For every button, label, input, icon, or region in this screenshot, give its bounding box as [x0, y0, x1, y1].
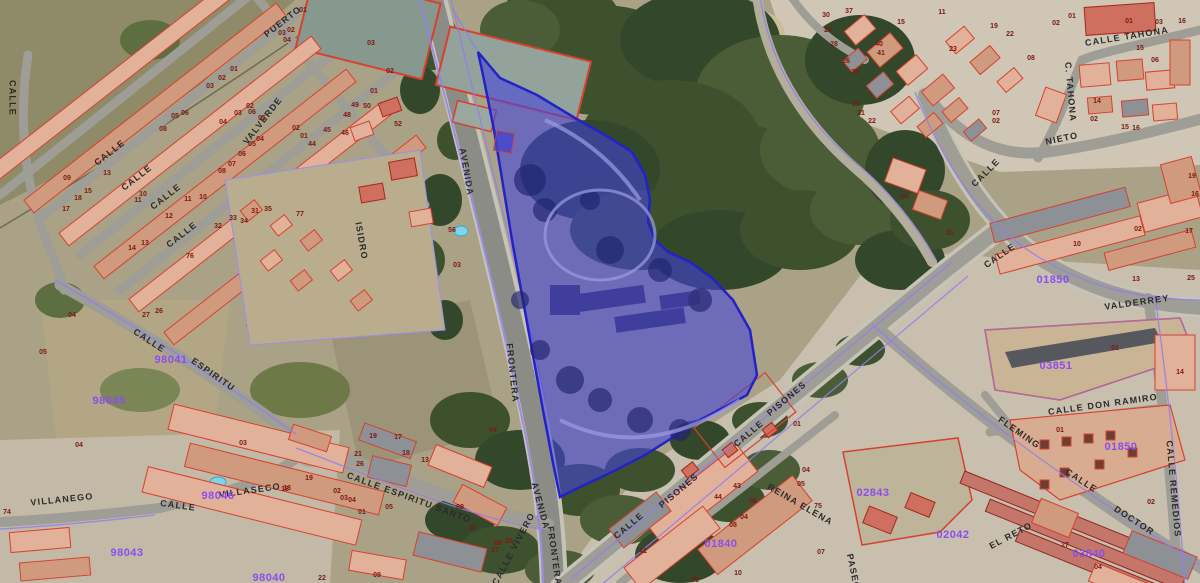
parcel-number-label: 04: [256, 136, 264, 143]
parcel-number-label: 01: [1056, 427, 1064, 434]
parcel-number-label: 76: [186, 253, 194, 260]
parcel-number-label: 10: [199, 194, 207, 201]
parcel-number-label: 03: [234, 110, 242, 117]
parcel-number-label: 44: [308, 141, 316, 148]
parcel-number-label: 06: [248, 109, 256, 116]
parcel-number-label: 52: [394, 121, 402, 128]
parcel-number-label: 04: [75, 442, 83, 449]
parcel-number-label: 77: [296, 211, 304, 218]
parcel-number-label: 74: [3, 509, 11, 516]
parcel-number-label: 02: [333, 488, 341, 495]
cadastral-zone-code: 01850: [1104, 441, 1137, 453]
cadastral-zone-code: 03851: [1039, 360, 1072, 372]
parcel-number-label: 05: [797, 481, 805, 488]
parcel-number-label: 18: [74, 195, 82, 202]
street-name-label: CALLE: [8, 80, 18, 116]
parcel-number-label: 02: [246, 103, 254, 110]
cadastral-zone-code: 98046: [201, 490, 234, 502]
parcel-number-label: 05: [385, 504, 393, 511]
parcel-number-label: 40: [875, 41, 883, 48]
parcel-number-label: 04: [489, 427, 497, 434]
parcel-number-label: 15: [897, 19, 905, 26]
parcel-number-label: 13: [1132, 276, 1140, 283]
parcel-number-label: 28: [830, 41, 838, 48]
parcel-number-label: 02: [386, 68, 394, 75]
parcel-number-label: 04: [1094, 564, 1102, 571]
parcel-number-label: 17: [394, 434, 402, 441]
parcel-number-label: 16: [1191, 191, 1199, 198]
parcel-number-label: 32: [214, 223, 222, 230]
parcel-number-label: 06: [1151, 57, 1159, 64]
parcel-number-label: 09: [373, 572, 381, 579]
parcel-number-label: 06: [238, 151, 246, 158]
parcel-number-label: 08: [469, 525, 477, 532]
parcel-number-label: 01: [946, 230, 954, 237]
parcel-number-label: 02: [287, 27, 295, 34]
parcel-number-label: 05: [39, 349, 47, 356]
parcel-number-label: 15: [1136, 45, 1144, 52]
cadastral-zone-code: 01840: [704, 538, 737, 550]
parcel-number-label: 05: [248, 141, 256, 148]
parcel-number-label: 07: [817, 549, 825, 556]
parcel-number-label: 13: [141, 240, 149, 247]
parcel-number-label: 07: [491, 547, 499, 554]
parcel-number-label: 29: [824, 27, 832, 34]
parcel-number-label: 04: [68, 312, 76, 319]
parcel-number-label: 01: [1068, 13, 1076, 20]
parcel-number-label: 44: [714, 494, 722, 501]
parcel-number-label: 02: [292, 125, 300, 132]
parcel-number-label: 02: [218, 75, 226, 82]
parcel-number-label: 26: [155, 308, 163, 315]
parcel-number-label: 19: [1188, 173, 1196, 180]
cadastral-zone-code: 98045: [92, 395, 125, 407]
parcel-number-label: 03: [367, 40, 375, 47]
parcel-number-label: 18: [283, 485, 291, 492]
parcel-number-label: 22: [1006, 31, 1014, 38]
parcel-number-label: 22: [868, 118, 876, 125]
parcel-number-label: 07: [228, 161, 236, 168]
parcel-number-label: 02: [1090, 116, 1098, 123]
cadastral-zone-code: 01850: [1036, 274, 1069, 286]
parcel-number-label: 16: [1132, 125, 1140, 132]
parcel-number-label: 43: [733, 483, 741, 490]
parcel-number-label: 03: [239, 440, 247, 447]
parcel-number-label: 03: [278, 30, 286, 37]
parcel-number-label: 22: [318, 575, 326, 582]
parcel-number-label: 08: [729, 522, 737, 529]
cadastral-map[interactable]: PUERTOVALVERDECALLECALLECALLECALLECALLEI…: [0, 0, 1200, 583]
parcel-number-label: 45: [323, 127, 331, 134]
parcel-number-label: 27: [142, 312, 150, 319]
cadastral-map-viewport[interactable]: PUERTOVALVERDECALLECALLECALLECALLECALLEI…: [0, 0, 1200, 583]
parcel-number-label: 12: [165, 213, 173, 220]
parcel-number-label: 02: [992, 118, 1000, 125]
parcel-number-label: 41: [639, 548, 647, 555]
parcel-number-label: 27: [1061, 542, 1069, 549]
parcel-number-label: 14: [1176, 369, 1184, 376]
parcel-number-label: 09: [456, 504, 464, 511]
parcel-number-label: 05: [258, 115, 266, 122]
parcel-number-label: 19: [990, 23, 998, 30]
parcel-number-label: 33: [229, 215, 237, 222]
cadastral-zone-code: 02042: [936, 529, 969, 541]
parcel-number-label: 48: [343, 112, 351, 119]
parcel-number-label: 18: [402, 450, 410, 457]
parcel-number-label: 16: [1178, 18, 1186, 25]
parcel-number-label: 21: [354, 451, 362, 458]
parcel-number-label: 04: [219, 119, 227, 126]
parcel-number-label: 14: [128, 245, 136, 252]
parcel-number-label: 04: [901, 194, 909, 201]
parcel-number-label: 31: [251, 208, 259, 215]
parcel-number-label: 02: [1134, 226, 1142, 233]
parcel-number-label: 04: [283, 37, 291, 44]
parcel-number-label: 17: [1185, 228, 1193, 235]
parcel-number-label: 06: [181, 110, 189, 117]
parcel-number-label: 08: [1027, 55, 1035, 62]
cadastral-zone-code: 02843: [856, 487, 889, 499]
parcel-number-label: 04: [802, 467, 810, 474]
parcel-number-label: 01: [370, 88, 378, 95]
parcel-number-label: 02: [1052, 20, 1060, 27]
parcel-number-label: 13: [421, 457, 429, 464]
parcel-number-label: 02: [1147, 499, 1155, 506]
parcel-number-label: 26: [356, 461, 364, 468]
parcel-number-label: 14: [1093, 98, 1101, 105]
parcel-number-label: 41: [877, 50, 885, 57]
parcel-number-label: 05: [505, 538, 513, 545]
cadastral-zone-code: 98040: [252, 572, 285, 583]
parcel-number-label: 50: [363, 103, 371, 110]
parcel-number-label: 01: [358, 509, 366, 516]
parcel-number-label: 08: [218, 168, 226, 175]
parcel-number-label: 01: [300, 133, 308, 140]
parcel-number-label: 75: [814, 503, 822, 510]
parcel-number-label: 01: [230, 66, 238, 73]
parcel-number-label: 11: [938, 9, 946, 16]
parcel-number-label: 19: [305, 475, 313, 482]
parcel-number-label: 01: [1125, 18, 1133, 25]
cadastral-zone-code: 98041: [154, 354, 187, 366]
parcel-number-label: 10: [1073, 241, 1081, 248]
parcel-number-label: 23: [852, 101, 860, 108]
parcel-number-label: 11: [134, 197, 142, 204]
parcel-number-label: 17: [62, 206, 70, 213]
parcel-number-label: 03: [1155, 19, 1163, 26]
parcel-number-label: 49: [351, 102, 359, 109]
parcel-number-label: 25: [1187, 275, 1195, 282]
parcel-number-label: 26: [842, 58, 850, 65]
parcel-number-label: 03: [340, 495, 348, 502]
parcel-number-label: 03: [206, 83, 214, 90]
parcel-number-label: 03: [453, 262, 461, 269]
parcel-number-label: 04: [348, 497, 356, 504]
parcel-number-label: 09: [691, 577, 699, 583]
parcel-number-label: 09: [63, 175, 71, 182]
parcel-number-label: 08: [159, 126, 167, 133]
parcel-number-label: 25: [851, 69, 859, 76]
parcel-number-label: 13: [103, 170, 111, 177]
parcel-number-label: 15: [84, 188, 92, 195]
parcel-number-label: 21: [857, 110, 865, 117]
parcel-number-label: 05: [171, 113, 179, 120]
parcel-number-label: 06: [494, 540, 502, 547]
parcel-number-label: 01: [1111, 345, 1119, 352]
parcel-number-label: 23: [949, 46, 957, 53]
parcel-number-label: 01: [299, 7, 307, 14]
parcel-number-label: 15: [1121, 124, 1129, 131]
parcel-number-label: 34: [240, 218, 248, 225]
parcel-number-label: 01: [793, 421, 801, 428]
parcel-number-label: 07: [992, 110, 1000, 117]
cadastral-zone-code: 03840: [1072, 548, 1105, 560]
parcel-number-label: 11: [184, 196, 192, 203]
parcel-number-label: 30: [822, 12, 830, 19]
parcel-number-label: 10: [734, 570, 742, 577]
parcel-number-label: 04: [740, 514, 748, 521]
parcel-number-label: 19: [369, 433, 377, 440]
parcel-number-label: 46: [341, 130, 349, 137]
cadastral-zone-code: 98043: [110, 547, 143, 559]
parcel-number-label: 35: [264, 206, 272, 213]
parcel-number-label: 56: [448, 227, 456, 234]
parcel-number-label: 05: [749, 498, 757, 505]
parcel-number-label: 37: [845, 8, 853, 15]
